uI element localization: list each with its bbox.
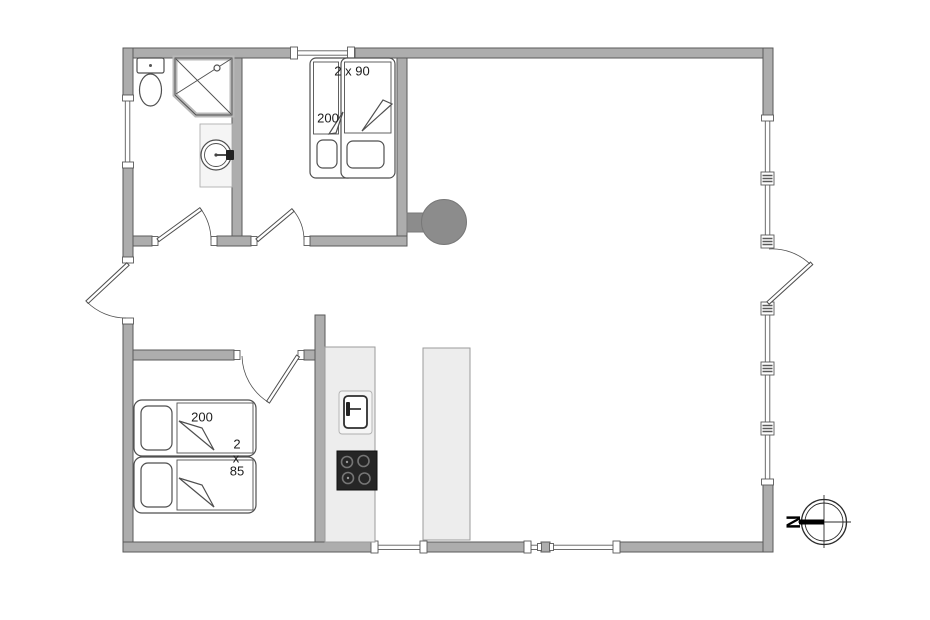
window-jamb-cap bbox=[348, 47, 355, 59]
door-swing-arc bbox=[201, 209, 211, 240]
bed-pillow bbox=[317, 140, 337, 168]
window-left-bathroom bbox=[123, 95, 134, 168]
window-jamb-cap bbox=[420, 541, 427, 553]
door-swing-arc bbox=[87, 302, 126, 318]
window-jamb-cap bbox=[123, 162, 134, 168]
sink-drain bbox=[214, 153, 217, 156]
wall-right-lower-stub bbox=[763, 483, 773, 552]
window-jamb-cap bbox=[123, 95, 134, 101]
compass-north-label: N bbox=[782, 515, 803, 529]
wood-stove-body bbox=[422, 200, 467, 245]
wall-right-upper-stub bbox=[763, 48, 773, 118]
window-mullion bbox=[761, 422, 774, 435]
wall-hall-segment bbox=[217, 236, 251, 246]
floorplan-canvas: N 2 x 90 200 200 2 x 85 bbox=[0, 0, 930, 620]
window-jamb-cap bbox=[762, 115, 774, 121]
kitchen-faucet-icon bbox=[346, 402, 350, 416]
cooktop-burner-dot bbox=[347, 477, 349, 479]
door-leaf bbox=[267, 355, 300, 403]
floorplan-svg: N 2 x 90 200 200 2 x 85 bbox=[0, 0, 930, 620]
bathroom-door bbox=[157, 208, 211, 242]
bed-pillow bbox=[141, 463, 172, 507]
wall-kitchen bbox=[315, 315, 325, 542]
door-leaf bbox=[767, 262, 813, 304]
window-top bbox=[291, 47, 355, 59]
wall-left-middle-segment bbox=[123, 168, 133, 257]
wood-stove bbox=[407, 200, 467, 245]
bedroom1-bed-length-label: 200 bbox=[317, 111, 339, 126]
bathroom bbox=[137, 58, 234, 187]
kitchen bbox=[325, 347, 470, 542]
toilet-flush-button bbox=[149, 64, 152, 67]
window-jamb-cap bbox=[538, 544, 542, 551]
door-jamb-cap bbox=[251, 237, 257, 246]
window-jamb-cap bbox=[291, 47, 298, 59]
door-leaf bbox=[86, 263, 129, 304]
door-jamb-cap bbox=[123, 318, 134, 324]
wall-left-upper-segment bbox=[123, 48, 133, 95]
door-swing-arc bbox=[293, 210, 304, 240]
wall-left-lower-segment bbox=[123, 324, 133, 552]
terrace-door bbox=[767, 249, 813, 304]
compass: N bbox=[782, 495, 852, 548]
bed-pillow bbox=[347, 141, 384, 168]
wall-bottom-right-segment bbox=[620, 542, 773, 552]
door-swing-arc bbox=[242, 356, 268, 402]
shower-head-icon bbox=[214, 65, 220, 71]
door-jamb-cap bbox=[152, 237, 158, 246]
wall-hall-segment bbox=[310, 236, 407, 246]
door-jamb-cap bbox=[304, 237, 310, 246]
door-leaf bbox=[157, 208, 202, 242]
door-leaf bbox=[256, 209, 294, 242]
wall-bottom-left-segment bbox=[123, 542, 378, 552]
toilet-bowl bbox=[140, 74, 162, 106]
wall-bedroom1-right bbox=[397, 58, 407, 246]
door-swing-arc bbox=[769, 249, 810, 264]
door-jamb-cap bbox=[234, 351, 240, 360]
wall-bedroom2-top-stub bbox=[304, 350, 315, 360]
kitchen-counter bbox=[325, 347, 375, 542]
wall-bottom-middle-segment bbox=[420, 542, 531, 552]
cooktop bbox=[337, 451, 377, 490]
door-jamb-cap bbox=[123, 257, 134, 263]
window-jamb-cap bbox=[524, 541, 531, 553]
wall-bedroom2-top bbox=[133, 350, 234, 360]
bed-pillow bbox=[141, 406, 172, 450]
bedroom2-bed-width-label-line1: 2 bbox=[233, 437, 240, 452]
window-jamb-cap bbox=[550, 544, 554, 551]
kitchen-island bbox=[423, 348, 470, 540]
cooktop-burner-dot bbox=[346, 461, 348, 463]
window-mullion bbox=[761, 302, 774, 315]
bedroom2-bed-width-label-line3: 85 bbox=[230, 464, 244, 479]
bedroom1-door bbox=[256, 209, 304, 242]
wall-hall-segment bbox=[133, 236, 152, 246]
window-mullion bbox=[761, 235, 774, 248]
window-jamb-cap bbox=[613, 541, 620, 553]
door-jamb-cap bbox=[211, 237, 217, 246]
wall-top-right-segment bbox=[355, 48, 773, 58]
window-post bbox=[541, 542, 550, 552]
bedroom2-door bbox=[242, 355, 299, 403]
bedroom2-bed-length-label: 200 bbox=[191, 410, 213, 425]
window-mullion bbox=[761, 172, 774, 185]
window-jamb-cap bbox=[371, 541, 378, 553]
window-mullion bbox=[761, 362, 774, 375]
sink-tap bbox=[226, 150, 234, 160]
window-jamb-cap bbox=[762, 479, 774, 485]
entrance-door bbox=[86, 263, 129, 318]
bedroom1-bed-width-label: 2 x 90 bbox=[334, 64, 369, 79]
